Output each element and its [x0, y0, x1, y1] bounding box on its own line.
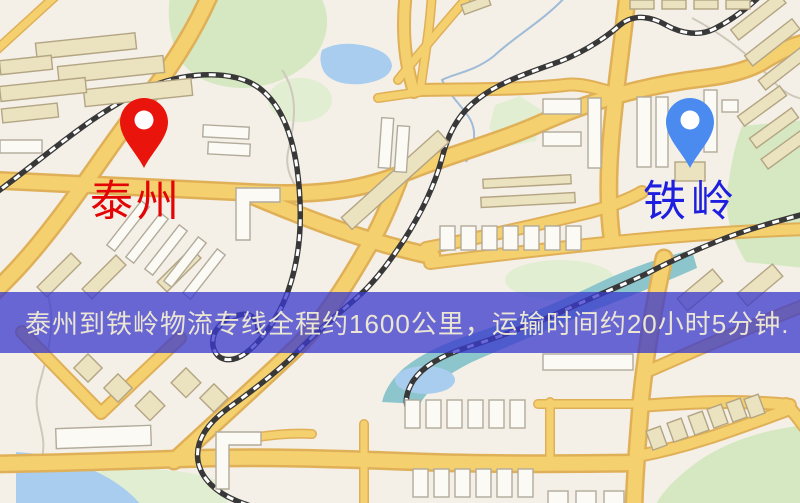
map-image: [0, 0, 800, 503]
origin-city-label: 泰州: [90, 181, 182, 224]
destination-city-label: 铁岭: [643, 181, 739, 224]
map-screenshot: 泰州 铁岭 泰州到铁岭物流专线全程约1600公里，运输时间约20小时5分钟.: [0, 0, 800, 503]
route-info-banner: 泰州到铁岭物流专线全程约1600公里，运输时间约20小时5分钟.: [0, 292, 800, 353]
route-info-text: 泰州到铁岭物流专线全程约1600公里，运输时间约20小时5分钟.: [25, 304, 789, 341]
